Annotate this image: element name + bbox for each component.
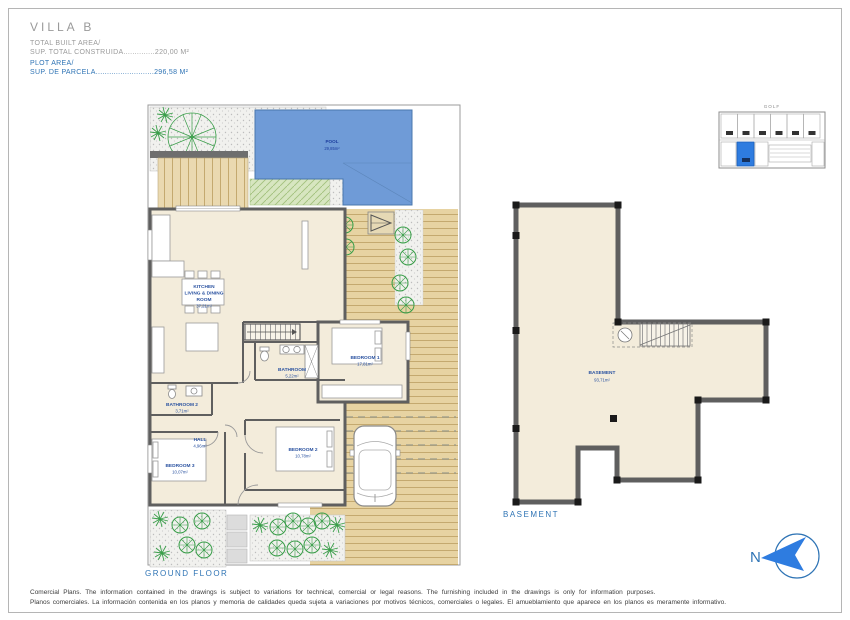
bedroom3-label: BEDROOM 3 [165,463,194,469]
page-title: VILLA B [30,20,94,34]
pool-label: POOL [325,139,338,144]
tree-icon [395,227,411,243]
bathroom2-area: 3,71m² [175,409,189,414]
bathroom-area: 5,22m² [285,374,299,379]
tree-icon [392,275,408,291]
north-arrow: N [742,522,838,590]
entrance-path-pavers [227,515,247,563]
tree-icon [398,297,414,313]
basement-plan: BASEMENT 93,71m² [480,190,790,535]
kitchen-label-1: KITCHEN [193,284,215,290]
golf-label: GOLF [764,104,781,109]
hall-area: 4,96m² [193,444,207,449]
plot-area-line-es: SUP. DE PARCELA.........................… [30,69,188,78]
kitchen-label-2: LIVING & DINING [185,291,224,297]
car [350,426,400,506]
bedroom1-label: BEDROOM 1 [350,355,379,361]
tree-icon [400,249,416,265]
site-key-map: GOLF [713,98,831,178]
kitchen-area: 37,21m² [196,304,212,309]
built-area-line-es: SUP. TOTAL CONSTRUIDA..............220,0… [30,49,189,58]
bathroom2-label: BATHROOM 2 [166,402,198,408]
terrace-wall [150,151,248,158]
plot-area-label-en: PLOT AREA/ [30,60,188,69]
north-arrow-pointer-icon [761,537,806,571]
hall-label: HALL [194,437,207,443]
basement-outline [516,205,766,502]
tree-icon [269,540,285,556]
tree-icon [287,541,303,557]
basement-area: 93,71m² [594,378,610,383]
basement-label: BASEMENT [589,370,616,376]
tree-icon [304,537,320,553]
tree-icon [196,542,212,558]
highlighted-unit-mark [742,158,750,162]
tree-icon [179,537,195,553]
tree-icon [314,513,330,529]
plot-area-block: PLOT AREA/ SUP. DE PARCELA..............… [30,60,188,77]
plot-area-value: 296,58 M² [154,69,188,76]
tree-icon [285,513,301,529]
disclaimer: Comercial Plans. The information contain… [30,588,822,607]
built-area-value: 220,00 M² [155,49,189,56]
ground-floor-caption: GROUND FLOOR [145,569,228,578]
tree-icon [194,513,210,529]
grass-patch [250,179,330,205]
bedroom2-label: BEDROOM 2 [288,447,317,453]
bedroom2-area: 10,78m² [295,454,311,459]
kitchen-label-3: ROOM [197,297,212,303]
gravel-strip [330,179,344,205]
disclaimer-line-es: Planos comerciales. La información conte… [30,598,822,608]
terrace-deck [158,158,248,209]
disclaimer-line-en: Comercial Plans. The information contain… [30,588,822,598]
built-area-label-en: TOTAL BUILT AREA/ [30,40,189,49]
staircase [244,324,300,340]
north-label: N [750,549,761,566]
basement-caption: BASEMENT [503,510,559,519]
highlighted-villa-unit [737,142,754,166]
pool-area-value: 29,85m² [324,146,340,151]
outdoor-shower-ramp [368,212,394,234]
bathroom-label: BATHROOM [278,367,306,373]
total-built-area-block: TOTAL BUILT AREA/ SUP. TOTAL CONSTRUIDA.… [30,40,189,57]
ground-floor-plan: POOL 29,85m² PLOT AREA 296,58m² [140,95,470,585]
bedroom1-area: 17,81m² [357,362,373,367]
tree-icon [172,517,188,533]
bedroom3-area: 10,07m² [172,470,188,475]
tree-icon [270,519,286,535]
